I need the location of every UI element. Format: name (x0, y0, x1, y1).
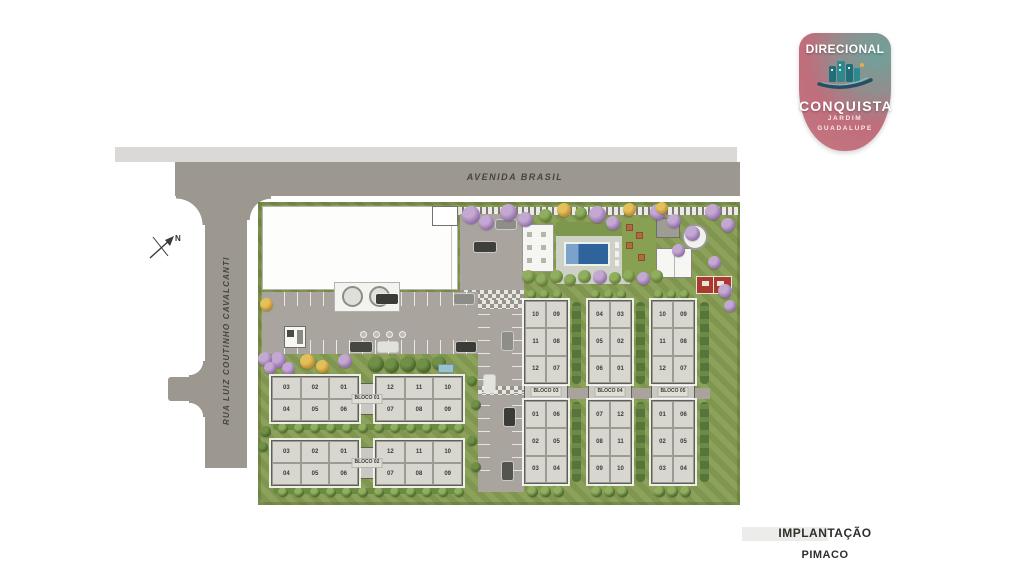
existing-building (262, 206, 458, 290)
unit-cell: 09 (546, 301, 567, 328)
bush (680, 486, 691, 497)
unit-cell: 02 (652, 428, 673, 455)
bush (604, 290, 613, 299)
accessible-marker (360, 331, 367, 338)
unit-cell: 05 (589, 328, 610, 355)
unit-cell: 10 (652, 301, 673, 328)
tree (724, 300, 736, 312)
tree (260, 426, 271, 437)
tree (539, 209, 552, 222)
tree (672, 244, 685, 257)
unit-cell: 04 (546, 456, 567, 483)
tree (705, 204, 721, 220)
car (378, 342, 398, 352)
tree (718, 284, 732, 298)
clubhouse-table (541, 245, 546, 250)
tree (593, 270, 607, 284)
unit-cell: 09 (673, 301, 694, 328)
car (350, 342, 372, 352)
parking-stripe (512, 327, 524, 328)
bush (604, 486, 615, 497)
accessible-marker (373, 331, 380, 338)
accessible-marker (399, 331, 406, 338)
bush (438, 487, 448, 497)
building-wing: 121110070809 (375, 376, 463, 422)
tree (609, 272, 621, 284)
tree (651, 270, 663, 282)
unit-cell: 03 (272, 377, 301, 399)
tree (589, 206, 606, 223)
parking-stripe (512, 314, 524, 315)
hedge-strip (636, 302, 645, 384)
bush (422, 487, 432, 497)
brand-name: DIRECIONAL (799, 42, 891, 56)
parking-stripe (336, 340, 337, 354)
tree (685, 226, 700, 241)
tree (637, 272, 650, 285)
building-wing: 040305020601 (588, 300, 632, 384)
project-name: CONQUISTA (799, 98, 891, 114)
unit-cell: 01 (610, 356, 631, 383)
bush (390, 423, 400, 433)
parking-stripe (310, 292, 311, 306)
gatehouse-mark (297, 330, 303, 344)
bush (342, 423, 352, 433)
bush (527, 486, 538, 497)
unit-cell: 05 (301, 399, 330, 421)
parking-stripe (427, 292, 428, 306)
implantation-plan-page: AVENIDA BRASIL RUA LUIZ COUTINHO CAVALCA… (0, 0, 1024, 576)
bush (454, 423, 464, 433)
crosswalk (478, 300, 524, 309)
bush (553, 486, 564, 497)
unit-cell: 09 (433, 399, 462, 421)
parking-stripe (478, 418, 490, 419)
clubhouse-table (541, 232, 546, 237)
unit-cell: 04 (272, 463, 301, 485)
parking-stripe (478, 353, 490, 354)
tree (606, 216, 620, 230)
unit-cell: 06 (589, 356, 610, 383)
block-label: BLOCO 04 (594, 387, 625, 397)
unit-cell: 03 (272, 441, 301, 463)
unit-cell: 11 (405, 441, 434, 463)
bush (310, 423, 320, 433)
parking-stripe (512, 392, 524, 393)
gatehouse-mark (287, 330, 294, 337)
playground-tile (638, 254, 645, 261)
tree (400, 356, 416, 372)
block-label: BLOCO 05 (657, 387, 688, 397)
bush (680, 290, 689, 299)
hedge-strip (700, 402, 709, 482)
unit-cell: 05 (673, 428, 694, 455)
parking-stripe (478, 314, 490, 315)
internal-road (478, 300, 524, 492)
path (695, 388, 710, 399)
unit-cell: 02 (301, 377, 330, 399)
parking-stripe (284, 292, 285, 306)
parking-stripe (297, 292, 298, 306)
tree (479, 215, 494, 230)
parking-stripe (440, 340, 441, 354)
bush (617, 290, 626, 299)
parking-stripe (440, 292, 441, 306)
bush (278, 487, 288, 497)
court-mark (702, 281, 709, 286)
building-wing: 010602050304 (651, 400, 695, 484)
court-mark (713, 277, 714, 293)
parking-stripe (453, 340, 454, 354)
unit-cell: 08 (405, 463, 434, 485)
parking-stripe (512, 353, 524, 354)
project-logo-badge: DIRECIONAL CONQUISTA JARDIM GUADALUPE (799, 33, 891, 151)
clubhouse-table (527, 245, 532, 250)
residential-block: 030201040506121110070809BLOCO 02 (271, 440, 463, 486)
parking-stripe (478, 444, 490, 445)
caption-title: IMPLANTAÇÃO (745, 526, 905, 540)
block-label: BLOCO 01 (351, 394, 382, 404)
tree (708, 256, 721, 269)
unit-cell: 02 (610, 328, 631, 355)
unit-cell: 07 (589, 401, 610, 428)
street-fillet (189, 401, 205, 417)
project-location-line1: JARDIM (799, 114, 891, 124)
tree (258, 442, 268, 452)
bush (278, 423, 288, 433)
tree (467, 376, 477, 386)
building-wing: 030201040506 (271, 440, 359, 486)
unit-cell: 04 (272, 399, 301, 421)
tree (316, 360, 329, 373)
pool-lounger (615, 260, 619, 266)
tree (557, 203, 571, 217)
bush (667, 290, 676, 299)
parking-stripe (512, 366, 524, 367)
unit-cell: 03 (525, 456, 546, 483)
bush (358, 487, 368, 497)
parking-stripe (512, 405, 524, 406)
unit-cell: 11 (525, 328, 546, 355)
residential-block: 100911081207010602050304BLOCO 05 (651, 300, 695, 484)
tree (518, 212, 533, 227)
bush (374, 487, 384, 497)
block-label: BLOCO 03 (530, 387, 561, 397)
tree (264, 362, 276, 374)
bush (591, 486, 602, 497)
tree (564, 274, 576, 286)
hedge-strip (700, 302, 709, 384)
bush (617, 486, 628, 497)
parking-stripe (478, 327, 490, 328)
unit-cell: 06 (546, 401, 567, 428)
unit-cell: 04 (673, 456, 694, 483)
unit-cell: 02 (525, 428, 546, 455)
parking-stripe (512, 340, 524, 341)
unit-cell: 10 (525, 301, 546, 328)
unit-cell: 01 (652, 401, 673, 428)
site-area: 030201040506121110070809BLOCO 0103020104… (258, 202, 740, 505)
tree (384, 358, 399, 373)
parking-stripe (427, 340, 428, 354)
unit-cell: 03 (652, 456, 673, 483)
bush (667, 486, 678, 497)
car (376, 294, 398, 304)
unit-cell: 08 (589, 428, 610, 455)
tree (550, 270, 563, 283)
unit-cell: 09 (589, 456, 610, 483)
clubhouse-table (527, 258, 532, 263)
parking-stripe (478, 366, 490, 367)
parking-stripe (310, 340, 311, 354)
north-compass-icon: N (144, 228, 188, 264)
building-wing: 010602050304 (524, 400, 568, 484)
tree (623, 203, 636, 216)
top-sidewalk (115, 147, 737, 162)
bush (527, 290, 536, 299)
path (632, 388, 651, 399)
unit-cell: 10 (433, 377, 462, 399)
path (568, 388, 588, 399)
unit-cell: 07 (546, 356, 567, 383)
hedge-strip (572, 402, 581, 482)
bush (374, 423, 384, 433)
tree (471, 400, 481, 410)
parking-stripe (478, 340, 490, 341)
building-wing: 100911081207 (651, 300, 695, 384)
unit-cell: 05 (301, 463, 330, 485)
pool-lounger (615, 242, 619, 248)
bush (310, 487, 320, 497)
bush (654, 486, 665, 497)
tree (462, 206, 480, 224)
tree (260, 298, 273, 311)
bush (390, 487, 400, 497)
parking-stripe (401, 292, 402, 306)
tree (721, 218, 735, 232)
bush (326, 423, 336, 433)
unit-cell: 12 (652, 356, 673, 383)
hedge-strip (572, 302, 581, 384)
left-street-stub (168, 377, 206, 401)
playground-tile (626, 224, 633, 231)
unit-cell: 03 (610, 301, 631, 328)
parking-stripe (512, 470, 524, 471)
tree (500, 204, 517, 221)
building-wing: 030201040506 (271, 376, 359, 422)
left-street-label: RUA LUIZ COUTINHO CAVALCANTI (222, 218, 231, 464)
tree (416, 358, 431, 373)
hedge-strip (636, 402, 645, 482)
unit-cell: 08 (673, 328, 694, 355)
parking-stripe (401, 340, 402, 354)
tree (536, 274, 548, 286)
car (504, 408, 515, 426)
tree (471, 462, 481, 472)
bush (422, 423, 432, 433)
building-wing: 100911081207 (524, 300, 568, 384)
bush (358, 423, 368, 433)
bush (326, 487, 336, 497)
residential-block: 040305020601071208110910BLOCO 04 (588, 300, 632, 484)
compass-north-label: N (175, 234, 181, 243)
unit-cell: 12 (525, 356, 546, 383)
car (484, 375, 495, 393)
parking-stripe (512, 431, 524, 432)
tree (338, 354, 352, 368)
building-wing: 121110070809 (375, 440, 463, 486)
parking-stripe (414, 292, 415, 306)
pool-lounger (615, 251, 619, 257)
street-fillet (189, 361, 205, 377)
parking-stripe (478, 457, 490, 458)
unit-cell: 11 (652, 328, 673, 355)
parking-stripe (414, 340, 415, 354)
tree (522, 270, 535, 283)
tree (282, 362, 295, 375)
car (502, 462, 513, 480)
unit-cell: 10 (433, 441, 462, 463)
bush (342, 487, 352, 497)
logo-buildings-icon (815, 56, 875, 92)
unit-cell: 06 (673, 401, 694, 428)
utility-tank (342, 286, 363, 307)
unit-cell: 07 (673, 356, 694, 383)
block-label: BLOCO 02 (351, 458, 382, 468)
unit-cell: 10 (610, 456, 631, 483)
car (496, 220, 516, 229)
car (474, 242, 496, 252)
tree (368, 356, 384, 372)
bush (406, 487, 416, 497)
tree (656, 202, 668, 214)
playground-tile (626, 242, 633, 249)
tree (623, 270, 635, 282)
unit-cell: 08 (546, 328, 567, 355)
playground-tile (636, 232, 643, 239)
accessible-marker (386, 331, 393, 338)
parking-stripe (375, 340, 376, 354)
unit-cell: 01 (525, 401, 546, 428)
tree (300, 354, 315, 369)
unit-cell: 11 (405, 377, 434, 399)
unit-cell: 11 (610, 428, 631, 455)
project-location-line2: GUADALUPE (799, 124, 891, 134)
bush (540, 486, 551, 497)
parking-stripe (512, 379, 524, 380)
tree (575, 207, 587, 219)
residential-block: 030201040506121110070809BLOCO 01 (271, 376, 463, 422)
bush (591, 290, 600, 299)
bush (406, 423, 416, 433)
tree (467, 436, 477, 446)
car (456, 342, 476, 352)
parking-stripe (323, 292, 324, 306)
parking-stripe (512, 444, 524, 445)
clubhouse-table (541, 258, 546, 263)
tree (667, 214, 681, 228)
parking-stripe (478, 431, 490, 432)
bench (438, 364, 454, 373)
building-wing: 071208110910 (588, 400, 632, 484)
parking-stripe (323, 340, 324, 354)
unit-cell: 08 (405, 399, 434, 421)
bush (438, 423, 448, 433)
bush (454, 487, 464, 497)
unit-cell: 05 (546, 428, 567, 455)
unit-cell: 12 (610, 401, 631, 428)
car (502, 332, 513, 350)
bush (294, 487, 304, 497)
bush (654, 290, 663, 299)
loading-dock (432, 206, 458, 226)
bush (294, 423, 304, 433)
clubhouse-table (527, 232, 532, 237)
street-fillet (176, 196, 205, 225)
unit-cell: 09 (433, 463, 462, 485)
bush (540, 290, 549, 299)
bush (553, 290, 562, 299)
parking-stripe (512, 457, 524, 458)
pool (564, 242, 610, 266)
caption-subtitle: PIMACO (745, 549, 905, 561)
avenue-label: AVENIDA BRASIL (435, 172, 595, 182)
tree (578, 270, 591, 283)
unit-cell: 02 (301, 441, 330, 463)
car (454, 294, 474, 304)
residential-block: 100911081207010602050304BLOCO 03 (524, 300, 568, 484)
unit-cell: 04 (589, 301, 610, 328)
